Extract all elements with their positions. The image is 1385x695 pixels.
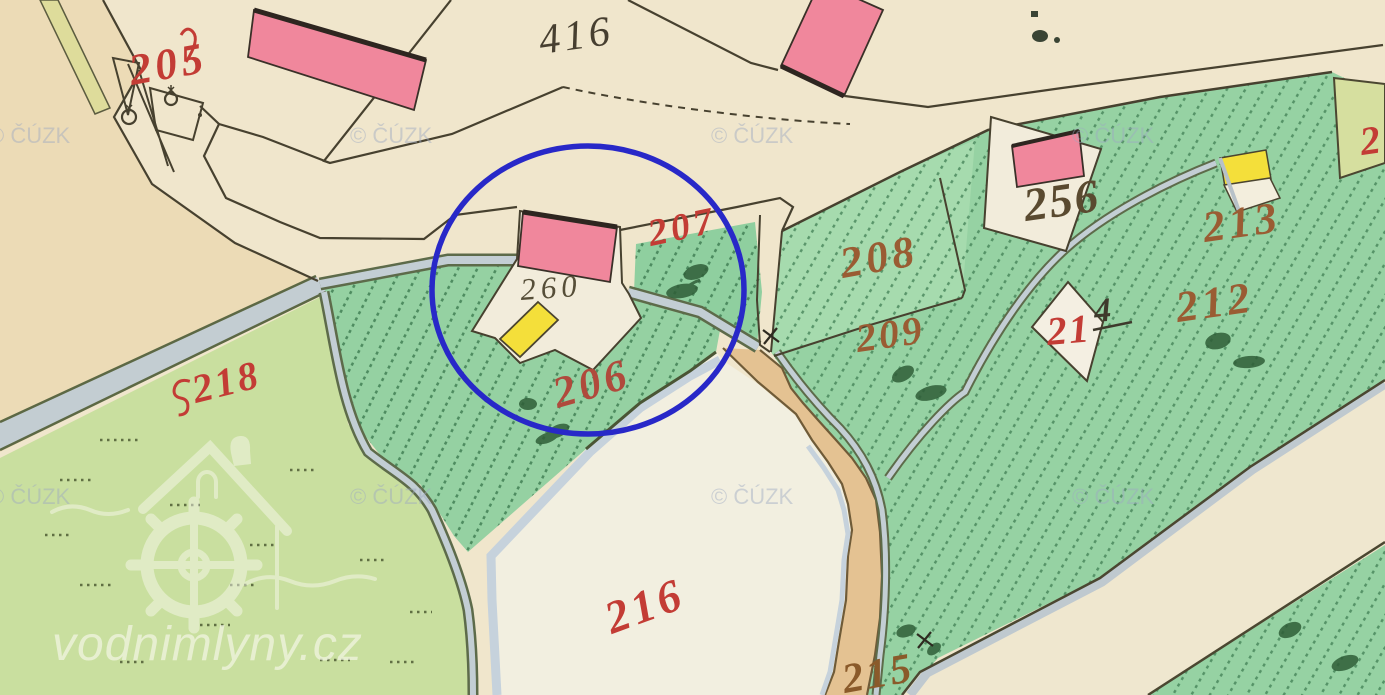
svg-text:© ČÚZK: © ČÚZK	[711, 484, 794, 509]
svg-text:260: 260	[519, 268, 583, 307]
svg-text:© ČÚZK: © ČÚZK	[1072, 123, 1155, 148]
svg-text:© ČÚZK: © ČÚZK	[350, 123, 433, 148]
svg-text:© ČÚZK: © ČÚZK	[1072, 484, 1155, 509]
svg-text:© ČÚZK: © ČÚZK	[0, 484, 71, 509]
svg-text:© ČÚZK: © ČÚZK	[0, 123, 71, 148]
svg-text:256: 256	[1019, 170, 1103, 232]
svg-text:4: 4	[1091, 292, 1112, 330]
svg-text:vodnimlyny.cz: vodnimlyny.cz	[52, 618, 363, 671]
svg-text:© ČÚZK: © ČÚZK	[350, 484, 433, 509]
svg-text:© ČÚZK: © ČÚZK	[711, 123, 794, 148]
svg-text:21: 21	[1044, 305, 1093, 354]
